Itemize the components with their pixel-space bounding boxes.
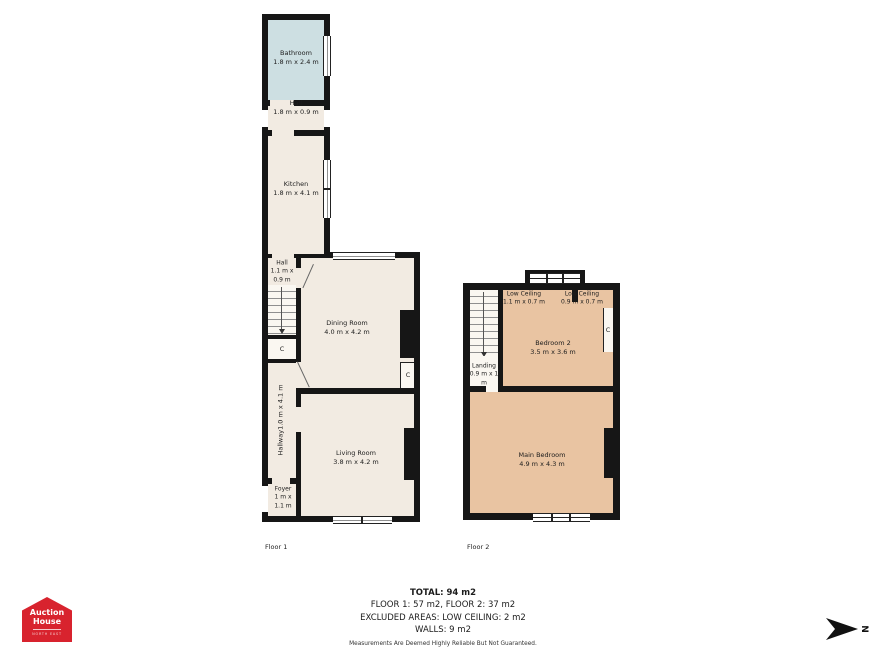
room-label-foyer: Foyer1 m x 1.1 m bbox=[274, 485, 291, 510]
door-opening bbox=[262, 110, 268, 127]
chimney-breast bbox=[404, 428, 414, 480]
floor-areas: FLOOR 1: 57 m2, FLOOR 2: 37 m2 bbox=[0, 599, 886, 611]
room-label-low-ceiling-left: Low Ceiling1.1 m x 0.7 m bbox=[503, 291, 545, 308]
room-label-hallway: Hallway1.0 m x 4.1 m bbox=[276, 360, 285, 480]
room-label-hall-top: Hall1.8 m x 0.9 m bbox=[273, 99, 318, 117]
door-opening bbox=[324, 110, 330, 127]
disclaimer-text: Measurements Are Deemed Highly Reliable … bbox=[0, 641, 886, 647]
logo-region: NORTH EAST bbox=[32, 632, 62, 636]
window-mullion bbox=[361, 517, 363, 523]
cupboard-label: C bbox=[280, 345, 285, 353]
excluded-areas: EXCLUDED AREAS: LOW CEILING: 2 m2 bbox=[0, 612, 886, 624]
area-summary: TOTAL: 94 m2 FLOOR 1: 57 m2, FLOOR 2: 37… bbox=[0, 587, 886, 636]
stairs-direction-line bbox=[483, 292, 484, 352]
room-label-dining: Dining Room4.0 m x 4.2 m bbox=[324, 319, 369, 337]
floorplan-page: Bathroom1.8 m x 2.4 m Hall1.8 m x 0.9 m … bbox=[0, 0, 886, 665]
stairs bbox=[268, 285, 296, 335]
stairs bbox=[470, 290, 498, 356]
room-label-low-ceiling-right: Low Ceiling0.9 m x 0.7 m bbox=[561, 291, 603, 308]
walls-area: WALLS: 9 m2 bbox=[0, 624, 886, 636]
north-label: N bbox=[859, 625, 869, 633]
window bbox=[530, 273, 580, 284]
room-label-hall-stairs: Hall1.1 m x 0.9 m bbox=[271, 259, 294, 284]
stairs-arrow-icon bbox=[279, 329, 285, 334]
floor1-caption: Floor 1 bbox=[265, 543, 287, 551]
window bbox=[333, 252, 395, 260]
window bbox=[323, 36, 331, 76]
chimney-breast bbox=[400, 310, 414, 358]
room-label-bedroom2: Bedroom 23.5 m x 3.6 m bbox=[530, 339, 575, 357]
room-label-kitchen: Kitchen1.8 m x 4.1 m bbox=[273, 180, 318, 198]
room-label-landing: Landing0.9 m x 1 m bbox=[470, 362, 498, 387]
floor2-caption: Floor 2 bbox=[467, 543, 489, 551]
cupboard-label: C bbox=[606, 326, 611, 334]
window-mullion bbox=[324, 188, 330, 190]
door-opening bbox=[296, 407, 301, 432]
wall bbox=[301, 388, 414, 394]
window-mullion bbox=[562, 274, 564, 283]
room-label-main-bedroom: Main Bedroom4.9 m x 4.3 m bbox=[519, 451, 566, 469]
logo-divider bbox=[33, 629, 61, 630]
window-mullion bbox=[551, 514, 553, 521]
front-door-opening bbox=[262, 486, 268, 512]
window bbox=[533, 513, 590, 522]
chimney-breast bbox=[604, 428, 613, 478]
stairs-direction-line bbox=[281, 287, 282, 329]
north-arrow: N bbox=[826, 618, 868, 640]
cupboard-label: C bbox=[406, 371, 411, 379]
north-arrow-icon bbox=[826, 618, 858, 640]
floor2-plan bbox=[463, 270, 620, 520]
logo-line2: House bbox=[33, 618, 61, 627]
room-label-bathroom: Bathroom1.8 m x 2.4 m bbox=[273, 49, 318, 67]
window-mullion bbox=[546, 274, 548, 283]
window bbox=[323, 160, 331, 218]
window-mullion bbox=[569, 514, 571, 521]
room-label-living: Living Room3.8 m x 4.2 m bbox=[333, 449, 378, 467]
window bbox=[333, 516, 392, 524]
door-opening bbox=[296, 268, 301, 288]
total-area: TOTAL: 94 m2 bbox=[0, 587, 886, 599]
